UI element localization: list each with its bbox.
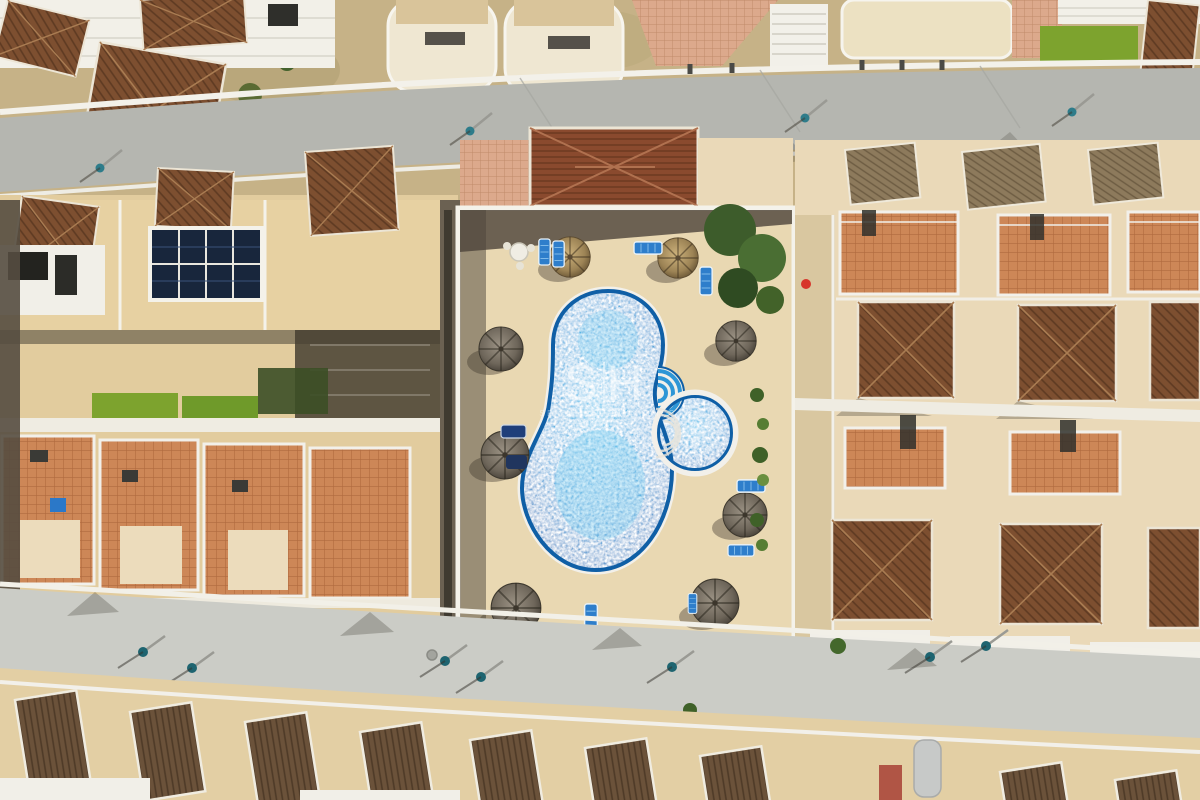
- dark-doorway: [1060, 420, 1076, 452]
- dark-doorway: [1030, 214, 1044, 240]
- solar-panel-array: [148, 226, 264, 302]
- blue-pool-toy: [50, 498, 66, 512]
- terracotta-terrace: [845, 428, 945, 488]
- aerial-photo: SH SPAIN HOLIDAY HOMES: [0, 0, 1200, 800]
- steep-roof: [360, 722, 435, 800]
- pool-house-roof: [530, 128, 698, 206]
- water-sheen: [555, 430, 645, 540]
- walkway: [0, 418, 445, 432]
- umbrella: [479, 327, 523, 371]
- pink-patio: [460, 140, 540, 210]
- patio: [228, 530, 288, 590]
- terracotta-terrace: [998, 215, 1110, 295]
- villa-window: [548, 36, 590, 49]
- covered-car: [914, 740, 941, 797]
- watermark-divider: [603, 362, 605, 402]
- garden-patch: [258, 368, 328, 414]
- lawn-patch: [92, 393, 178, 419]
- pyramid-roof: [1018, 305, 1116, 401]
- white-terrace: [0, 778, 150, 800]
- sun-lounger-navy: [506, 455, 527, 469]
- sun-lounger: [688, 594, 697, 614]
- sun-lounger: [700, 267, 712, 295]
- ac-unit: [30, 450, 48, 462]
- steep-roof: [245, 712, 320, 800]
- ac-unit: [122, 470, 138, 482]
- dark-doorway: [900, 415, 916, 449]
- patio: [120, 526, 182, 584]
- terracotta-terrace: [1128, 212, 1200, 292]
- pyramid-roof: [305, 146, 399, 236]
- pool-enclosure: SH SPAIN HOLIDAY HOMES: [458, 128, 794, 652]
- sun-lounger: [539, 239, 550, 265]
- villa-window: [425, 32, 465, 45]
- scene-svg: SH SPAIN HOLIDAY HOMES: [0, 0, 1200, 800]
- villa-parapet: [396, 0, 488, 24]
- side-path: [795, 215, 835, 650]
- pyramid-roof: [155, 168, 234, 230]
- villa-parapet: [514, 0, 614, 26]
- terrace-row: [2, 436, 410, 598]
- left-housing-block: [0, 146, 458, 620]
- pyramid-roof: [832, 520, 932, 620]
- shed-roof: [962, 144, 1046, 210]
- wall-shadow-left: [460, 210, 486, 648]
- lawn-patch: [1040, 26, 1138, 62]
- red-ball: [801, 279, 811, 289]
- manhole-cover: [427, 650, 437, 660]
- pool-house-wall: [698, 138, 793, 210]
- sun-lounger: [553, 241, 564, 267]
- road-shrub: [830, 638, 846, 654]
- watermark-logo: SH: [564, 355, 651, 411]
- alley-shadow: [444, 210, 452, 650]
- pyramid-roof: [1000, 524, 1102, 624]
- villa-block: [842, 0, 1012, 58]
- terracotta-terrace: [840, 212, 958, 294]
- umbrella: [691, 579, 739, 627]
- pyramid-roof: [858, 302, 954, 398]
- rooftop-equipment: [268, 4, 298, 26]
- sun-lounger-navy: [501, 425, 526, 438]
- white-terrace: [300, 790, 460, 800]
- shed-roof: [845, 143, 920, 205]
- brick-shed: [879, 765, 902, 800]
- steep-roof: [470, 730, 545, 800]
- watermark-subtext: SPAIN HOLIDAY HOMES: [539, 409, 676, 418]
- right-housing-block: [795, 140, 1200, 710]
- shed-roof: [1088, 143, 1163, 205]
- pyramid-roof: [1148, 528, 1200, 628]
- ac-unit: [232, 480, 248, 492]
- villa-hip-roof: [140, 0, 247, 50]
- steep-roof: [15, 690, 90, 789]
- dark-window: [55, 255, 77, 295]
- pyramid-roof: [1150, 302, 1200, 400]
- patio: [20, 520, 80, 578]
- umbrella: [716, 321, 756, 361]
- dark-doorway: [862, 210, 876, 236]
- lawn-patch: [182, 396, 258, 420]
- sun-lounger: [728, 545, 754, 556]
- sun-lounger: [634, 242, 662, 254]
- thatch-umbrella: [658, 238, 698, 278]
- shaded-edge: [0, 200, 20, 620]
